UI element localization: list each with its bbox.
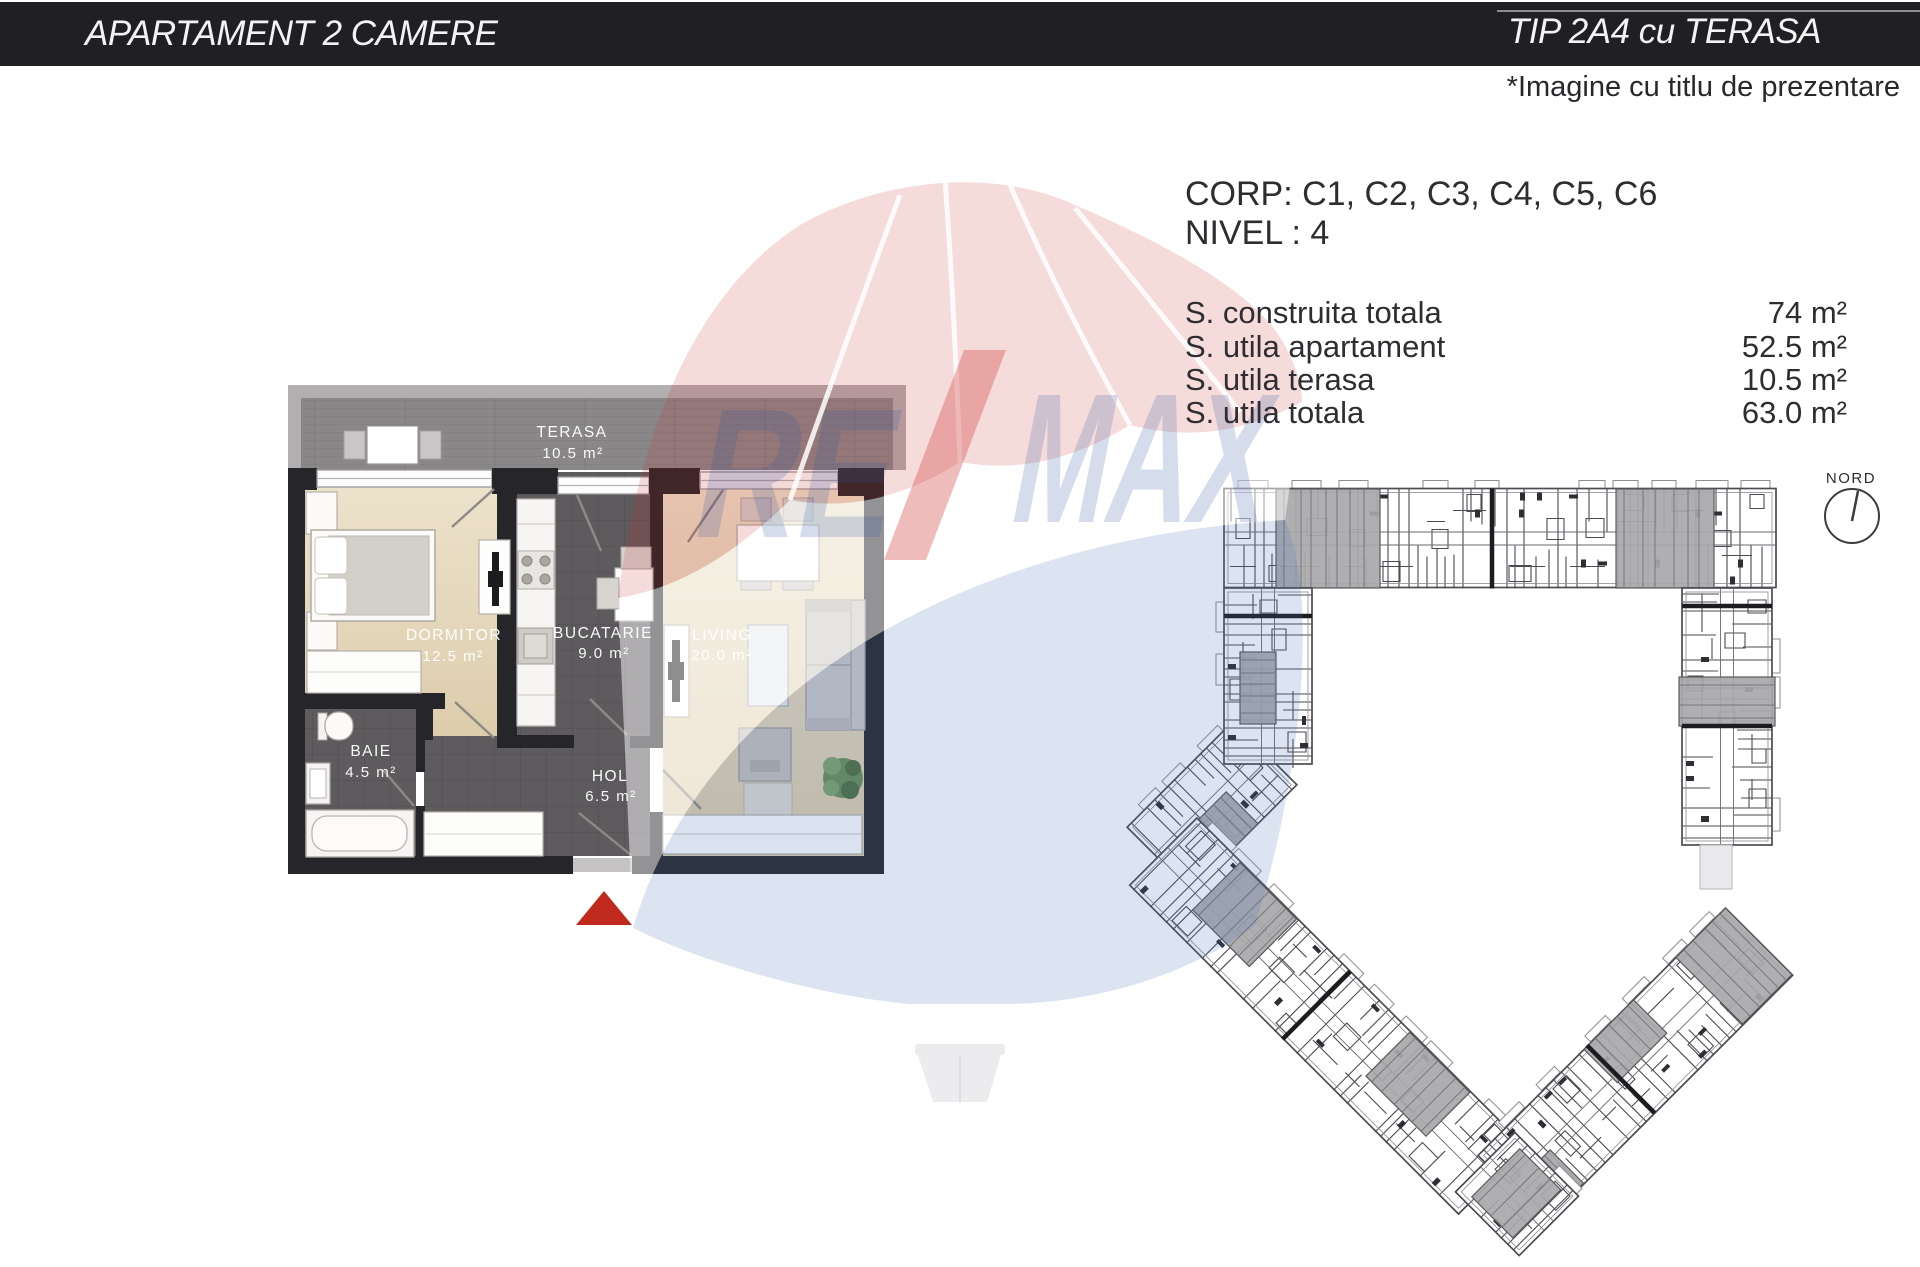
svg-text:HOL: HOL	[592, 768, 628, 785]
svg-text:4.5 m²: 4.5 m²	[345, 764, 397, 781]
svg-text:10.5 m²: 10.5 m²	[542, 445, 603, 462]
svg-text:BAIE: BAIE	[350, 743, 391, 760]
svg-text:DORMITOR: DORMITOR	[406, 627, 502, 644]
svg-text:NORD: NORD	[1826, 470, 1876, 487]
svg-text:RE: RE	[680, 371, 917, 577]
svg-text:TERASA: TERASA	[536, 424, 607, 441]
svg-text:12.5 m²: 12.5 m²	[422, 648, 483, 665]
